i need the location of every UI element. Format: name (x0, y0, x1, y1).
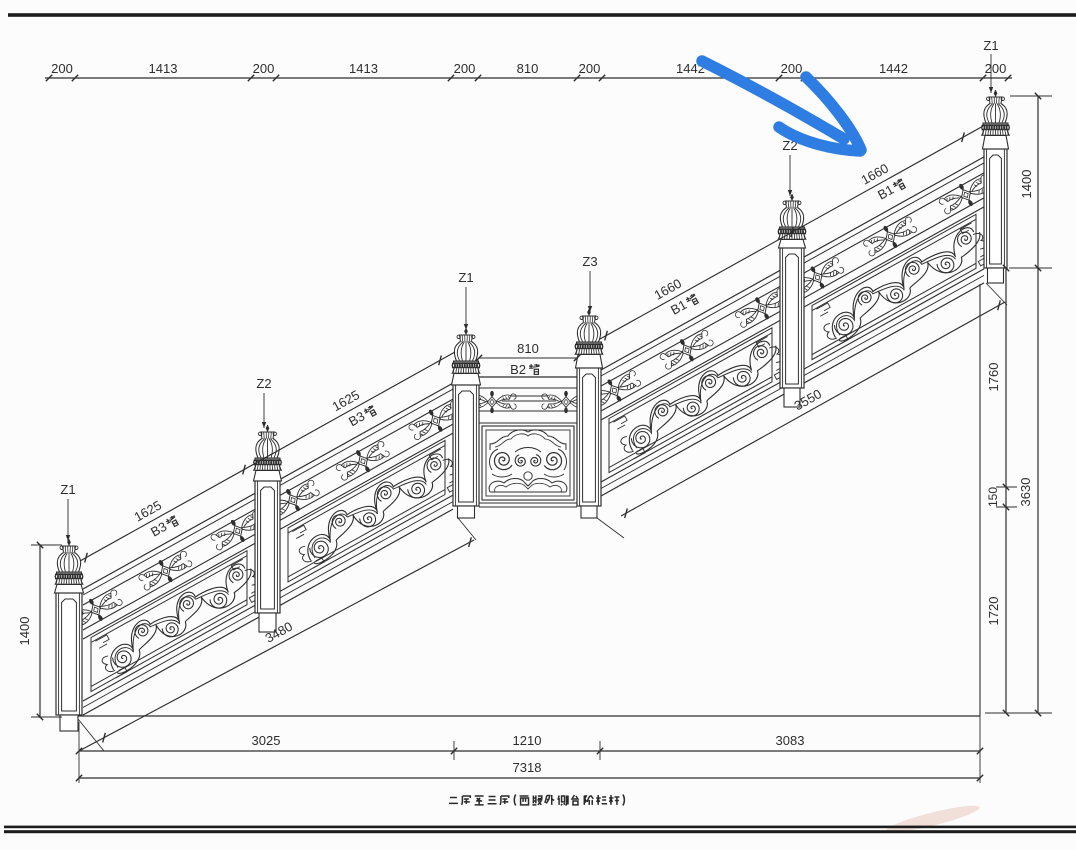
svg-text:Z1: Z1 (60, 482, 75, 497)
svg-text:200: 200 (985, 61, 1007, 76)
svg-text:200: 200 (781, 61, 803, 76)
svg-text:3083: 3083 (776, 733, 805, 748)
svg-text:200: 200 (253, 61, 275, 76)
svg-text:1442: 1442 (879, 61, 908, 76)
svg-text:Z1: Z1 (458, 270, 473, 285)
svg-text:810: 810 (517, 61, 539, 76)
svg-text:7318: 7318 (513, 760, 542, 775)
svg-text:1413: 1413 (149, 61, 178, 76)
svg-text:3630: 3630 (1018, 478, 1033, 507)
svg-text:200: 200 (51, 61, 73, 76)
svg-text:150: 150 (986, 487, 1000, 507)
svg-text:1400: 1400 (1019, 170, 1034, 199)
svg-text:1760: 1760 (986, 363, 1001, 392)
svg-text:1210: 1210 (513, 733, 542, 748)
svg-text:200: 200 (579, 61, 601, 76)
svg-text:Z2: Z2 (256, 376, 271, 391)
svg-text:3025: 3025 (252, 733, 281, 748)
svg-text:1413: 1413 (349, 61, 378, 76)
svg-text:Z3: Z3 (582, 254, 597, 269)
svg-text:200: 200 (454, 61, 476, 76)
svg-text:Z1: Z1 (983, 38, 998, 53)
svg-text:1400: 1400 (17, 617, 32, 646)
svg-text:B2: B2 (510, 362, 526, 377)
svg-text:1720: 1720 (986, 597, 1001, 626)
svg-text:810: 810 (517, 341, 539, 356)
